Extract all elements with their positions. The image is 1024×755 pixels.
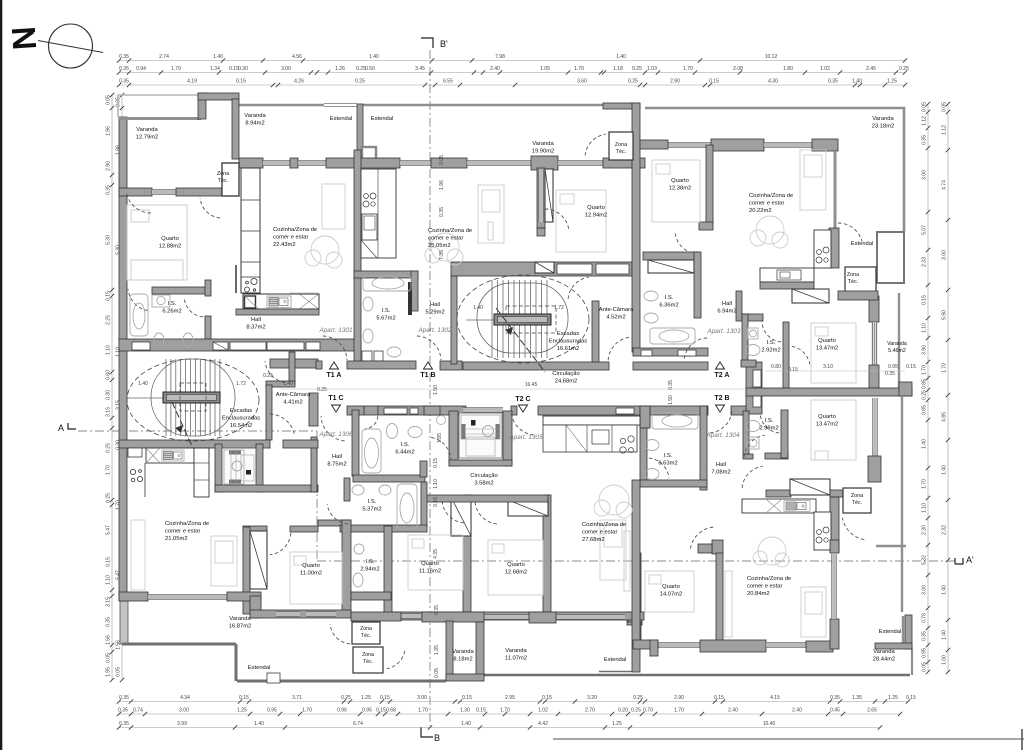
svg-text:1.40: 1.40: [283, 381, 293, 387]
svg-text:0.45: 0.45: [830, 708, 840, 714]
svg-text:0.35: 0.35: [885, 371, 895, 377]
svg-text:2.30: 2.30: [922, 525, 928, 535]
svg-text:1.25: 1.25: [612, 721, 622, 727]
svg-text:3.99: 3.99: [177, 721, 187, 727]
svg-text:2.90: 2.90: [670, 79, 680, 85]
svg-text:1.72: 1.72: [554, 305, 564, 311]
svg-text:A': A': [966, 555, 974, 565]
svg-text:1.25: 1.25: [887, 79, 897, 85]
svg-text:5.32: 5.32: [922, 555, 928, 565]
svg-text:1.40: 1.40: [138, 381, 148, 387]
svg-text:3.10: 3.10: [823, 364, 833, 370]
svg-text:7.35: 7.35: [439, 250, 445, 260]
svg-text:0.35: 0.35: [828, 79, 838, 85]
svg-text:4.34: 4.34: [180, 695, 190, 701]
svg-text:ZonaTéc.: ZonaTéc.: [217, 171, 229, 184]
svg-text:2.40: 2.40: [490, 66, 500, 72]
svg-text:1.02: 1.02: [820, 66, 830, 72]
svg-text:1.70: 1.70: [683, 66, 693, 72]
svg-text:4.26: 4.26: [294, 79, 304, 85]
svg-text:1.40: 1.40: [213, 54, 223, 60]
svg-text:Estendal: Estendal: [604, 657, 627, 663]
svg-text:T2 B: T2 B: [714, 395, 729, 402]
svg-text:1.40: 1.40: [616, 54, 626, 60]
svg-text:0.15: 0.15: [709, 79, 719, 85]
svg-text:Circulação3.58m2: Circulação3.58m2: [470, 473, 497, 486]
svg-text:0.05: 0.05: [922, 662, 928, 672]
svg-text:0.15: 0.15: [376, 708, 386, 714]
svg-text:T1 C: T1 C: [328, 395, 343, 402]
svg-text:0.25: 0.25: [631, 708, 641, 714]
svg-text:3.00: 3.00: [179, 708, 189, 714]
svg-text:0.35: 0.35: [119, 54, 129, 60]
svg-text:0.05: 0.05: [942, 102, 948, 112]
svg-text:2.32: 2.32: [942, 525, 948, 535]
svg-text:Varanda23.18m2: Varanda23.18m2: [872, 116, 895, 129]
svg-text:1.70: 1.70: [674, 708, 684, 714]
svg-text:2.90: 2.90: [106, 161, 112, 171]
svg-text:10.40: 10.40: [763, 721, 776, 727]
svg-text:1.34: 1.34: [210, 66, 220, 72]
svg-text:1.40: 1.40: [922, 439, 928, 449]
svg-text:Quarto11.00m2: Quarto11.00m2: [300, 563, 322, 576]
svg-text:0.15: 0.15: [462, 695, 472, 701]
svg-text:3.45: 3.45: [415, 66, 425, 72]
svg-text:2.74: 2.74: [159, 54, 169, 60]
svg-text:0.25: 0.25: [341, 695, 351, 701]
svg-text:Circulação24.68m2: Circulação24.68m2: [552, 371, 579, 384]
svg-text:1.40: 1.40: [254, 721, 264, 727]
svg-text:0.15: 0.15: [106, 557, 112, 567]
svg-text:Apart. 1306: Apart. 1306: [318, 431, 352, 438]
svg-text:Apart. 1305: Apart. 1305: [508, 434, 542, 441]
svg-text:3.60: 3.60: [577, 79, 587, 85]
svg-text:0.95: 0.95: [922, 648, 928, 658]
svg-text:10.12: 10.12: [765, 54, 778, 60]
svg-text:Varanda12.79m2: Varanda12.79m2: [136, 127, 159, 140]
svg-text:0.05: 0.05: [922, 102, 928, 112]
svg-text:ZonaTéc.: ZonaTéc.: [360, 626, 372, 639]
svg-text:Varanda8.94m2: Varanda8.94m2: [244, 113, 266, 126]
svg-text:1.40: 1.40: [942, 630, 948, 640]
svg-text:0.15: 0.15: [714, 695, 724, 701]
svg-text:3.15: 3.15: [106, 407, 112, 417]
svg-text:Quarto12.68m2: Quarto12.68m2: [505, 562, 528, 575]
svg-text:1.03: 1.03: [647, 66, 657, 72]
svg-text:B': B': [440, 39, 448, 49]
svg-text:4.56: 4.56: [292, 54, 302, 60]
svg-text:1.35: 1.35: [852, 695, 862, 701]
svg-text:0.25: 0.25: [633, 695, 643, 701]
svg-text:3.15: 3.15: [106, 597, 112, 607]
svg-text:2.95: 2.95: [505, 695, 515, 701]
svg-text:4.85: 4.85: [942, 412, 948, 422]
svg-text:T1 A: T1 A: [327, 372, 342, 379]
svg-text:Quarto12.94m2: Quarto12.94m2: [585, 205, 608, 218]
svg-text:2.90: 2.90: [674, 695, 684, 701]
svg-text:0.35: 0.35: [119, 66, 129, 72]
svg-text:0.15: 0.15: [433, 458, 439, 468]
svg-text:Apart. 1304: Apart. 1304: [705, 432, 739, 439]
svg-text:1.05: 1.05: [540, 66, 550, 72]
svg-text:4.74: 4.74: [942, 180, 948, 190]
svg-text:5.30: 5.30: [106, 235, 112, 245]
svg-text:0.95: 0.95: [888, 364, 898, 370]
svg-text:0.15: 0.15: [906, 695, 916, 701]
svg-text:0.78: 0.78: [922, 613, 928, 623]
svg-text:5.90: 5.90: [942, 310, 948, 320]
svg-text:1.70: 1.70: [574, 66, 584, 72]
svg-text:2.40: 2.40: [728, 708, 738, 714]
svg-text:2.40: 2.40: [792, 708, 802, 714]
svg-text:0.05: 0.05: [106, 653, 112, 663]
svg-text:1.96: 1.96: [106, 126, 112, 136]
svg-text:0.15: 0.15: [922, 295, 928, 305]
svg-text:0.35: 0.35: [119, 695, 129, 701]
svg-text:3.20: 3.20: [587, 695, 597, 701]
svg-text:1.10: 1.10: [106, 575, 112, 585]
svg-text:1.10: 1.10: [106, 345, 112, 355]
svg-text:Apart. 1303: Apart. 1303: [706, 328, 740, 335]
svg-text:3.00: 3.00: [922, 585, 928, 595]
svg-text:4.30: 4.30: [768, 79, 778, 85]
svg-text:0.15: 0.15: [542, 695, 552, 701]
svg-text:1.70: 1.70: [922, 479, 928, 489]
svg-text:0.35: 0.35: [106, 185, 112, 195]
svg-text:1.85: 1.85: [437, 433, 443, 443]
svg-text:0.85: 0.85: [922, 379, 928, 389]
svg-text:Quarto13.47m2: Quarto13.47m2: [816, 414, 839, 427]
svg-text:Varanda16.87m2: Varanda16.87m2: [229, 616, 252, 629]
svg-text:1.80: 1.80: [783, 66, 793, 72]
svg-text:4.42: 4.42: [538, 721, 548, 727]
svg-text:3.71: 3.71: [292, 695, 302, 701]
svg-text:Varanda8.18m2: Varanda8.18m2: [452, 649, 474, 662]
svg-text:2.65: 2.65: [867, 708, 877, 714]
svg-text:Apart. 1301: Apart. 1301: [318, 327, 352, 334]
svg-text:1.25: 1.25: [888, 695, 898, 701]
svg-text:0.35: 0.35: [830, 695, 840, 701]
svg-text:ZonaTéc.: ZonaTéc.: [847, 272, 859, 285]
svg-text:0.15: 0.15: [433, 497, 439, 507]
svg-text:0.25: 0.25: [628, 79, 638, 85]
svg-text:0.95: 0.95: [267, 708, 277, 714]
svg-text:1.25: 1.25: [361, 695, 371, 701]
svg-text:Quarto14.07m2: Quarto14.07m2: [660, 584, 683, 597]
svg-text:1.70: 1.70: [922, 365, 928, 375]
svg-text:4.19: 4.19: [187, 79, 197, 85]
svg-text:0.25: 0.25: [899, 66, 909, 72]
svg-text:Varanda5.46m2: Varanda5.46m2: [887, 341, 907, 354]
svg-text:0.15: 0.15: [906, 364, 916, 370]
svg-text:0.05: 0.05: [439, 155, 445, 165]
svg-text:3.00: 3.00: [922, 170, 928, 180]
svg-text:16.45: 16.45: [525, 382, 538, 388]
svg-text:0.30: 0.30: [238, 66, 248, 72]
svg-text:1.72: 1.72: [236, 381, 246, 387]
svg-text:1.40: 1.40: [369, 54, 379, 60]
svg-text:6.74: 6.74: [353, 721, 363, 727]
svg-text:Apart. 1302: Apart. 1302: [417, 327, 451, 334]
svg-text:0.25: 0.25: [922, 390, 928, 400]
svg-text:1.02: 1.02: [538, 708, 548, 714]
svg-text:3.00: 3.00: [281, 66, 291, 72]
svg-text:0.15: 0.15: [380, 695, 390, 701]
svg-text:0.25: 0.25: [632, 66, 642, 72]
svg-text:1.40: 1.40: [461, 721, 471, 727]
svg-text:Estendal: Estendal: [371, 116, 394, 122]
svg-text:1.12: 1.12: [942, 125, 948, 135]
svg-text:0.35: 0.35: [434, 605, 440, 615]
svg-text:0.15: 0.15: [239, 695, 249, 701]
svg-text:0.05: 0.05: [434, 668, 440, 678]
svg-text:1.70: 1.70: [171, 66, 181, 72]
svg-text:0.35: 0.35: [119, 721, 129, 727]
svg-text:1.25: 1.25: [237, 708, 247, 714]
svg-text:Quarto12.88m2: Quarto12.88m2: [159, 236, 182, 249]
svg-text:1.40: 1.40: [942, 465, 948, 475]
svg-text:1.40: 1.40: [473, 305, 483, 311]
svg-text:1.00: 1.00: [942, 655, 948, 665]
svg-text:1.56: 1.56: [106, 635, 112, 645]
svg-text:A: A: [58, 423, 64, 433]
svg-text:T2 A: T2 A: [715, 372, 730, 379]
svg-text:ZonaTéc.: ZonaTéc.: [615, 142, 627, 155]
svg-text:3.90: 3.90: [922, 345, 928, 355]
svg-text:0.35: 0.35: [922, 631, 928, 641]
svg-text:0.60: 0.60: [106, 370, 112, 380]
svg-text:0.25: 0.25: [106, 443, 112, 453]
svg-text:0.35: 0.35: [118, 708, 128, 714]
svg-text:1.30: 1.30: [460, 708, 470, 714]
svg-text:T2 C: T2 C: [515, 396, 530, 403]
svg-text:0.20: 0.20: [618, 708, 628, 714]
svg-text:2.45: 2.45: [866, 66, 876, 72]
svg-text:5.07: 5.07: [922, 225, 928, 235]
svg-text:Varanda28.44m2: Varanda28.44m2: [873, 649, 896, 662]
svg-text:0.15: 0.15: [788, 367, 798, 373]
svg-text:0.50: 0.50: [365, 66, 375, 72]
svg-text:7.98: 7.98: [495, 54, 505, 60]
svg-text:1.26: 1.26: [335, 66, 345, 72]
svg-text:ZonaTéc.: ZonaTéc.: [362, 652, 374, 665]
svg-text:0.30: 0.30: [106, 390, 112, 400]
svg-text:0.25: 0.25: [263, 373, 273, 379]
svg-text:Quarto13.47m2: Quarto13.47m2: [816, 338, 839, 351]
svg-text:0.25: 0.25: [355, 79, 365, 85]
svg-text:0.05: 0.05: [106, 95, 112, 105]
svg-text:0.35: 0.35: [106, 617, 112, 627]
svg-text:0.70: 0.70: [643, 708, 653, 714]
svg-text:0.35: 0.35: [668, 380, 674, 390]
svg-text:0.05: 0.05: [116, 667, 122, 677]
svg-text:Estendal: Estendal: [879, 629, 902, 635]
svg-text:1.70: 1.70: [500, 708, 510, 714]
svg-text:1.95: 1.95: [106, 667, 112, 677]
svg-text:5.47: 5.47: [106, 525, 112, 535]
svg-text:1.50: 1.50: [668, 395, 674, 405]
svg-text:0.80: 0.80: [771, 364, 781, 370]
svg-text:1.50: 1.50: [433, 385, 439, 395]
svg-text:0.96: 0.96: [337, 708, 347, 714]
svg-text:1.12: 1.12: [922, 116, 928, 126]
svg-text:Quarto12.38m2: Quarto12.38m2: [669, 178, 692, 191]
svg-text:4.15: 4.15: [770, 695, 780, 701]
svg-text:0.35: 0.35: [922, 135, 928, 145]
svg-text:0.15: 0.15: [236, 79, 246, 85]
svg-text:1.95: 1.95: [434, 645, 440, 655]
svg-text:2.25: 2.25: [106, 315, 112, 325]
svg-text:1.96: 1.96: [439, 180, 445, 190]
svg-text:1.70: 1.70: [302, 708, 312, 714]
svg-text:2.08: 2.08: [733, 66, 743, 72]
svg-text:ZonaTéc.: ZonaTéc.: [851, 493, 863, 506]
svg-text:0.95: 0.95: [362, 708, 372, 714]
svg-text:1.70: 1.70: [418, 708, 428, 714]
svg-text:0.68: 0.68: [386, 708, 396, 714]
svg-text:1.40: 1.40: [942, 585, 948, 595]
svg-text:0.25: 0.25: [317, 387, 327, 393]
svg-text:0.74: 0.74: [133, 708, 143, 714]
svg-text:0.15: 0.15: [476, 708, 486, 714]
svg-text:Varanda19.90m2: Varanda19.90m2: [532, 141, 555, 154]
svg-text:3.00: 3.00: [942, 250, 948, 260]
svg-text:0.94: 0.94: [136, 66, 146, 72]
svg-text:Estendal: Estendal: [851, 241, 874, 247]
svg-text:2.70: 2.70: [585, 708, 595, 714]
svg-text:B: B: [434, 733, 440, 743]
svg-text:0.25: 0.25: [106, 493, 112, 503]
svg-text:1.18: 1.18: [613, 66, 623, 72]
svg-text:1.10: 1.10: [922, 323, 928, 333]
svg-text:Quarto11.16m2: Quarto11.16m2: [419, 561, 441, 574]
svg-text:Estendal: Estendal: [248, 665, 271, 671]
svg-text:1.10: 1.10: [922, 503, 928, 513]
svg-text:4.35: 4.35: [433, 549, 439, 559]
svg-text:1.40: 1.40: [852, 79, 862, 85]
svg-text:T1 B: T1 B: [420, 372, 435, 379]
svg-text:Varanda11.07m2: Varanda11.07m2: [505, 648, 528, 661]
svg-text:1.70: 1.70: [942, 363, 948, 373]
svg-text:0.35: 0.35: [439, 207, 445, 217]
svg-text:2.33: 2.33: [922, 257, 928, 267]
svg-text:1.10: 1.10: [433, 479, 439, 489]
svg-text:0.85: 0.85: [922, 405, 928, 415]
svg-text:1.70: 1.70: [106, 465, 112, 475]
svg-text:0.15: 0.15: [106, 291, 112, 301]
svg-text:Estendal: Estendal: [330, 116, 353, 122]
svg-text:0.35: 0.35: [119, 79, 129, 85]
svg-text:6.55: 6.55: [443, 79, 453, 85]
svg-text:3.00: 3.00: [417, 695, 427, 701]
